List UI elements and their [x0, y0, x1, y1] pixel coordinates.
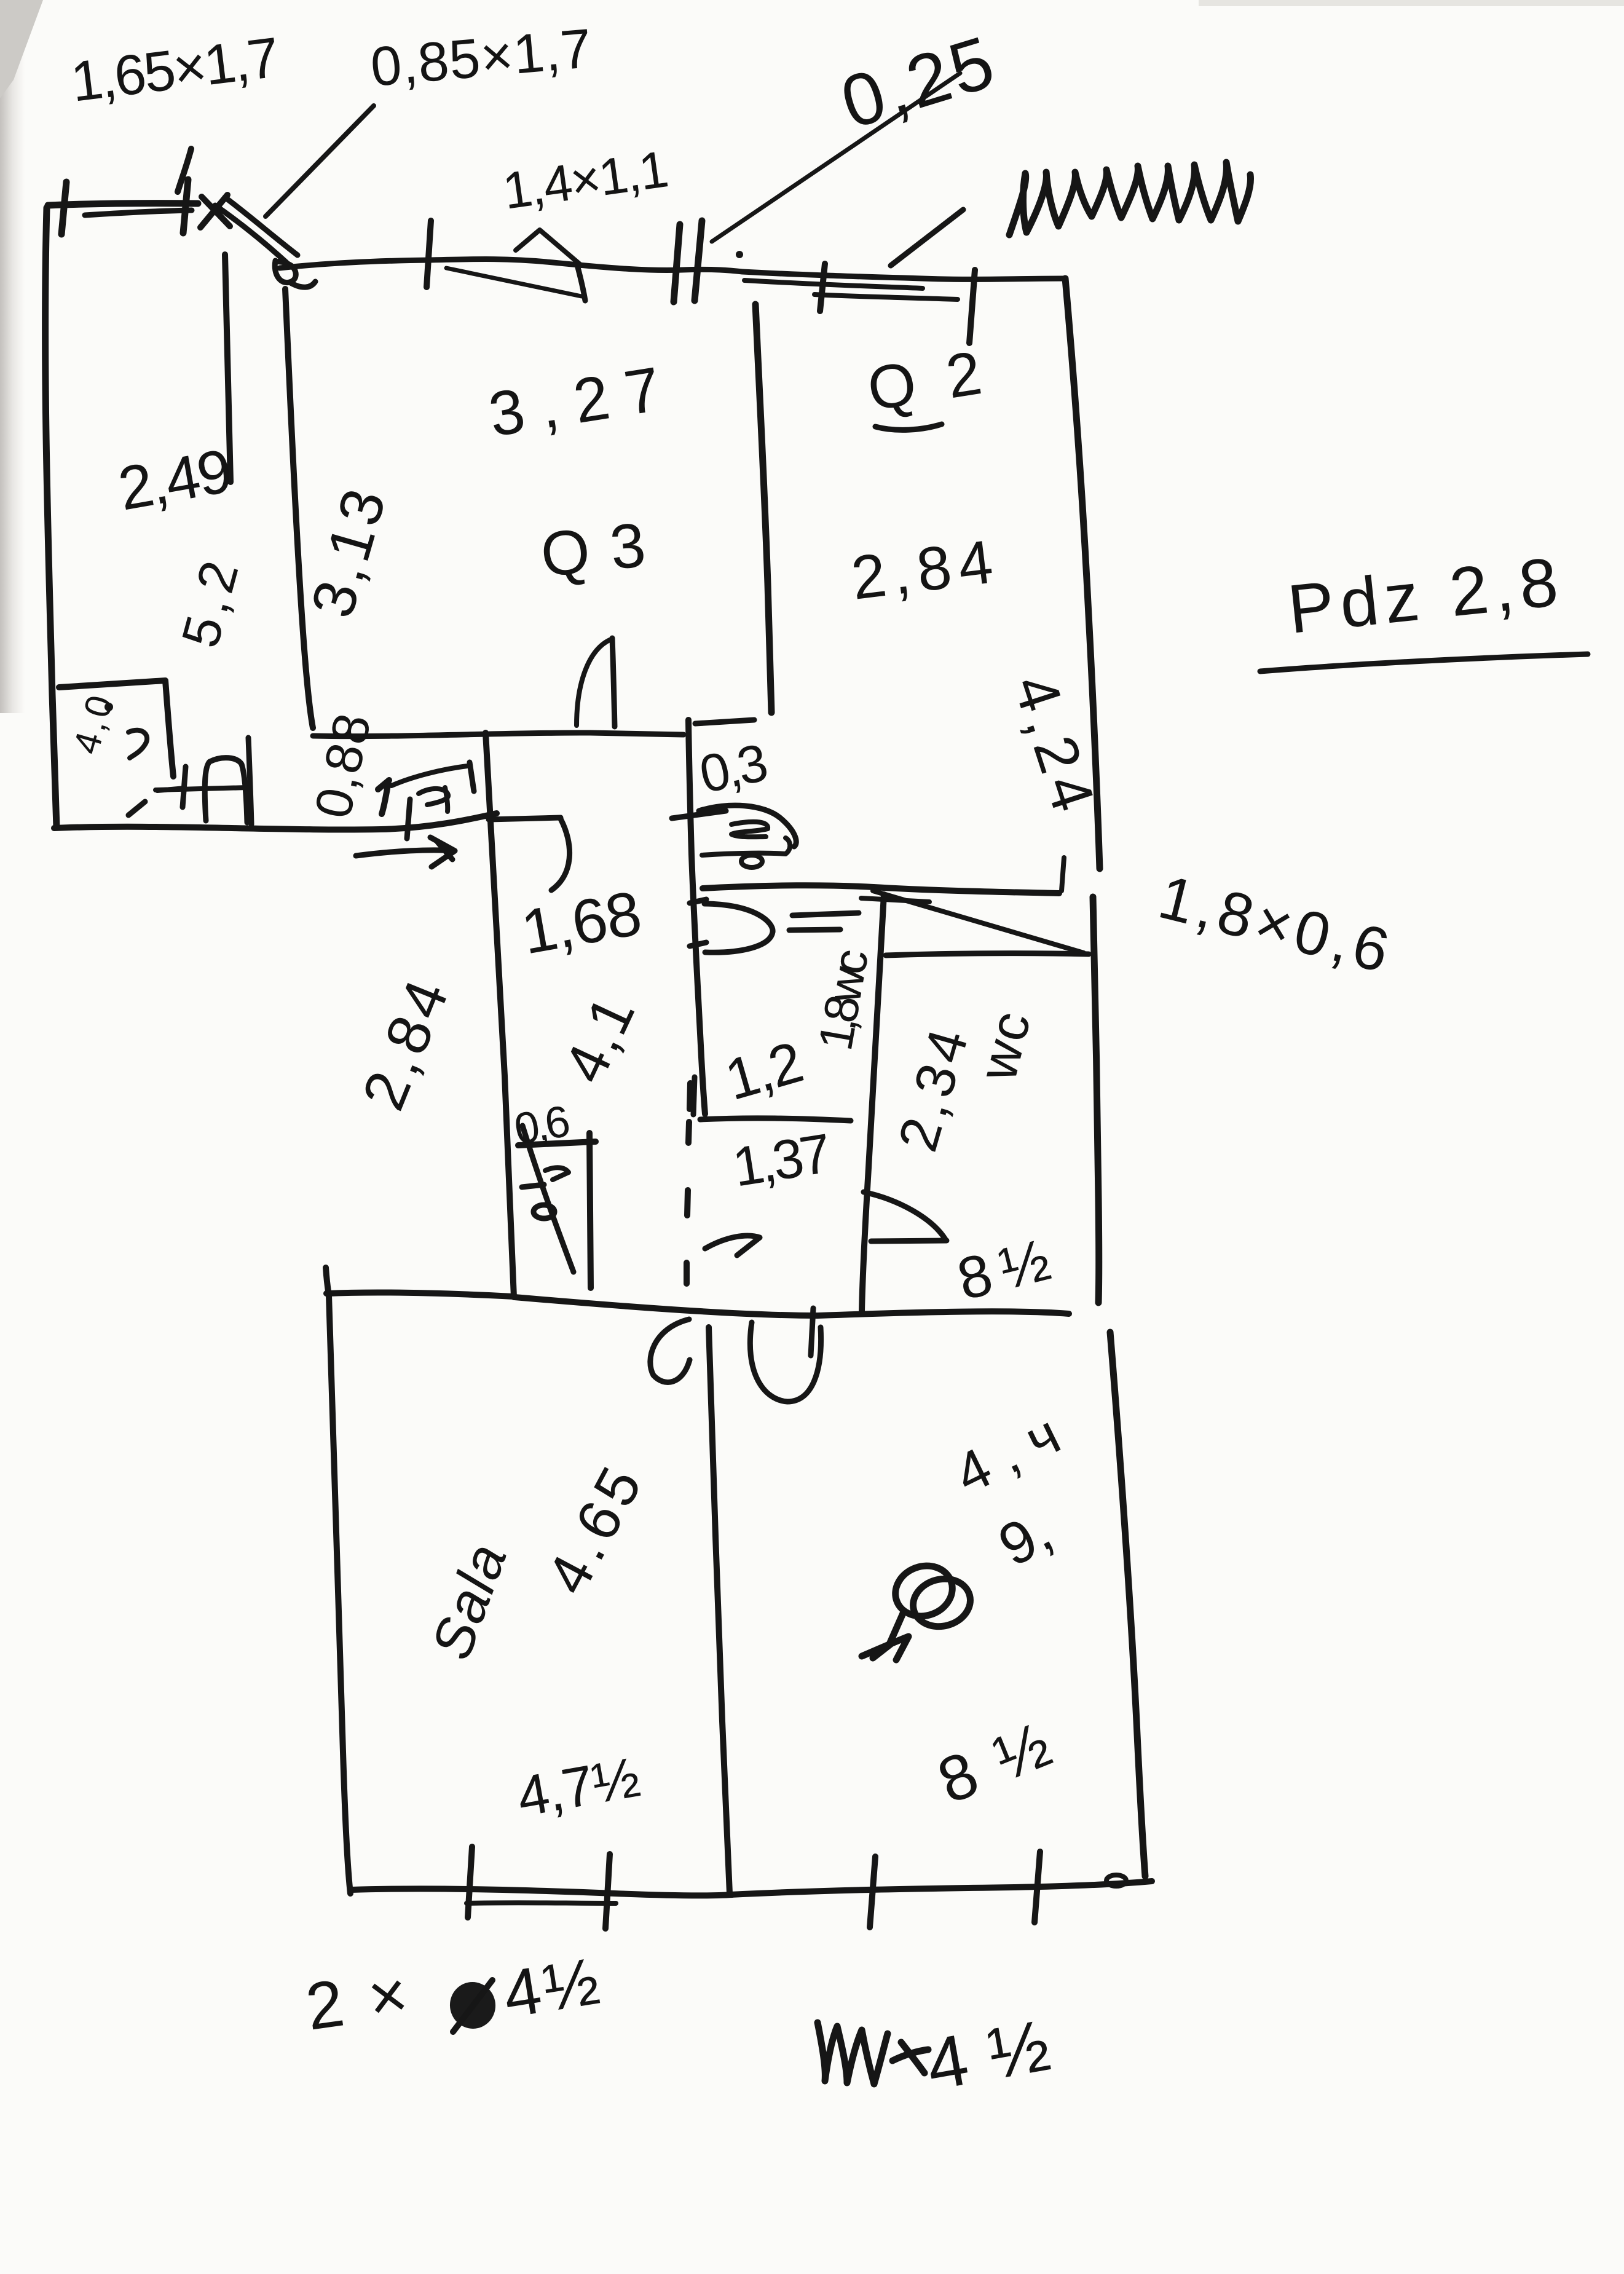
svg-text:4½: 4½: [499, 1943, 604, 2032]
svg-text:0,6: 0,6: [511, 1096, 574, 1154]
